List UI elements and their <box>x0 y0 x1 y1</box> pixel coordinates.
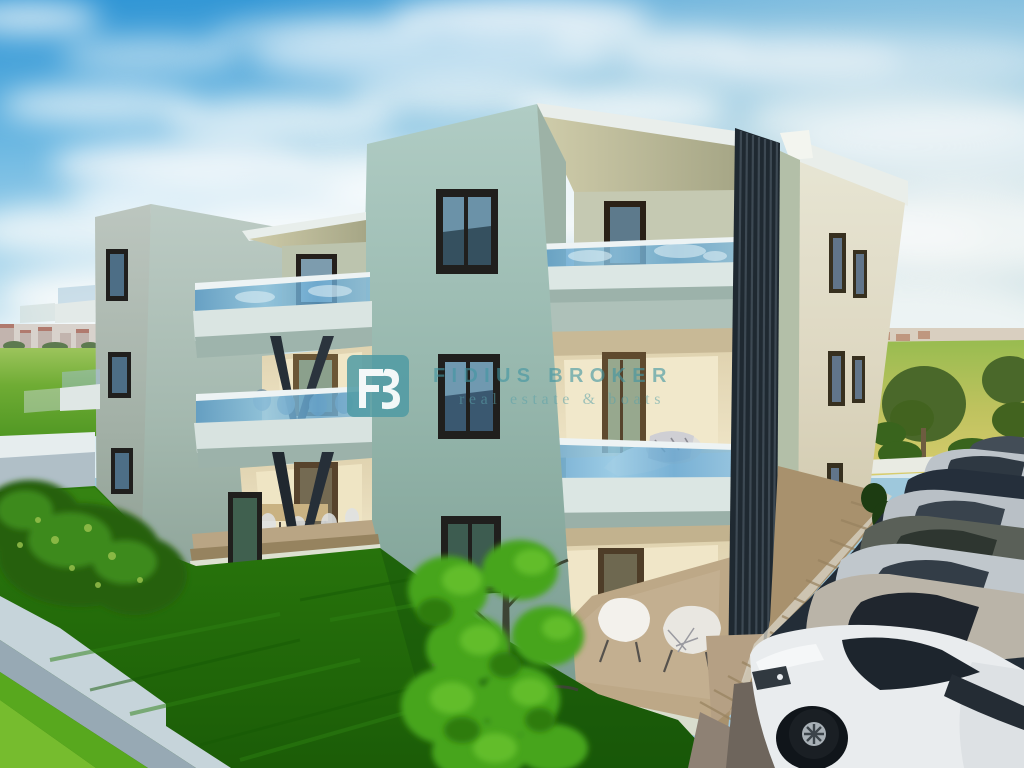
svg-text:real estate & boats: real estate & boats <box>459 391 665 408</box>
svg-text:FIDIUS BROKER: FIDIUS BROKER <box>433 365 673 387</box>
